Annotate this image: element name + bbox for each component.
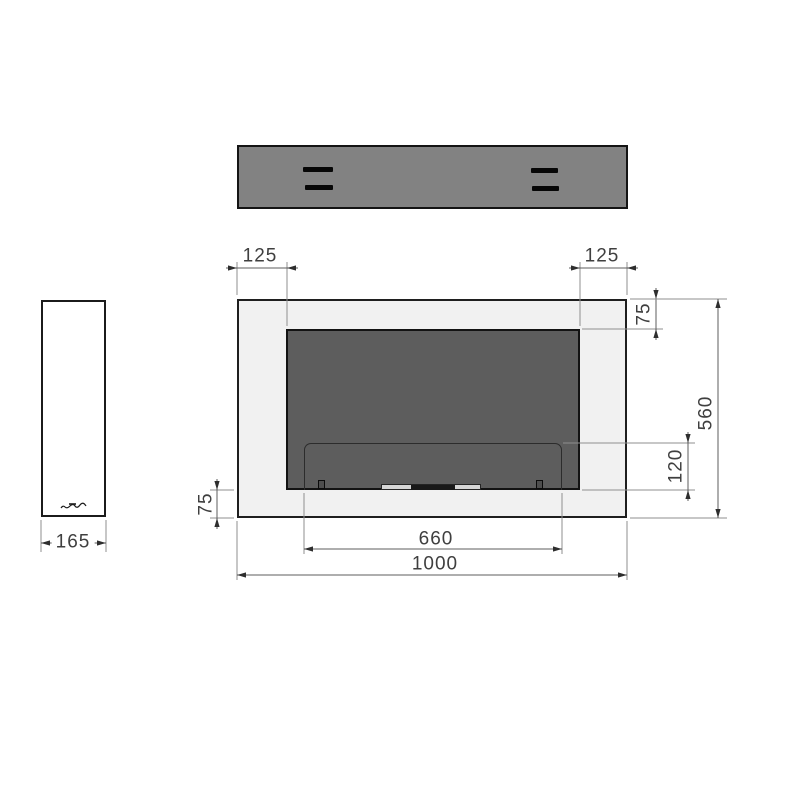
dimension-labels: 125 125 75 560 120 75 660 1000 165 bbox=[0, 0, 800, 800]
technical-drawing: 125 125 75 560 120 75 660 1000 165 bbox=[0, 0, 800, 800]
dim-bottom-inset-label: 75 bbox=[197, 492, 216, 515]
dim-opening-bottom-height-label: 120 bbox=[667, 449, 686, 484]
dim-opening-width-label: 660 bbox=[419, 530, 454, 549]
dim-right-offset-label: 125 bbox=[585, 247, 620, 266]
dim-overall-height-label: 560 bbox=[697, 396, 716, 431]
dim-left-offset-label: 125 bbox=[243, 247, 278, 266]
dim-depth-label: 165 bbox=[52, 533, 95, 552]
dim-overall-width-label: 1000 bbox=[412, 555, 458, 574]
dim-top-inset-label: 75 bbox=[635, 302, 654, 325]
